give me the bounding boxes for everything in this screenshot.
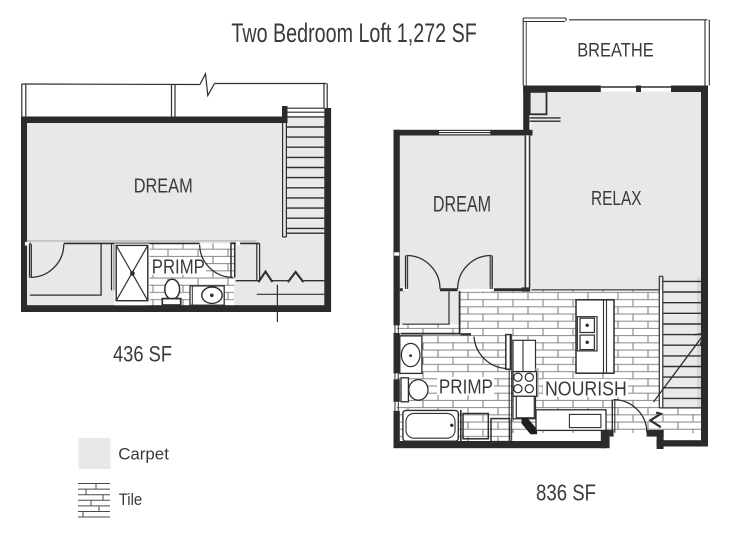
svg-text:836 SF: 836 SF (536, 480, 596, 506)
svg-text:BREATHE: BREATHE (577, 40, 654, 62)
svg-text:Carpet: Carpet (118, 445, 169, 464)
svg-text:PRIMP: PRIMP (439, 377, 493, 399)
svg-text:436 SF: 436 SF (113, 342, 172, 367)
svg-text:Two Bedroom Loft 1,272 SF: Two Bedroom Loft 1,272 SF (231, 18, 476, 48)
svg-text:Tile: Tile (119, 490, 143, 509)
svg-text:DREAM: DREAM (433, 192, 491, 217)
svg-text:NOURISH: NOURISH (545, 379, 627, 401)
svg-text:RELAX: RELAX (591, 187, 642, 210)
svg-text:PRIMP: PRIMP (152, 257, 205, 279)
svg-text:DREAM: DREAM (134, 176, 193, 198)
